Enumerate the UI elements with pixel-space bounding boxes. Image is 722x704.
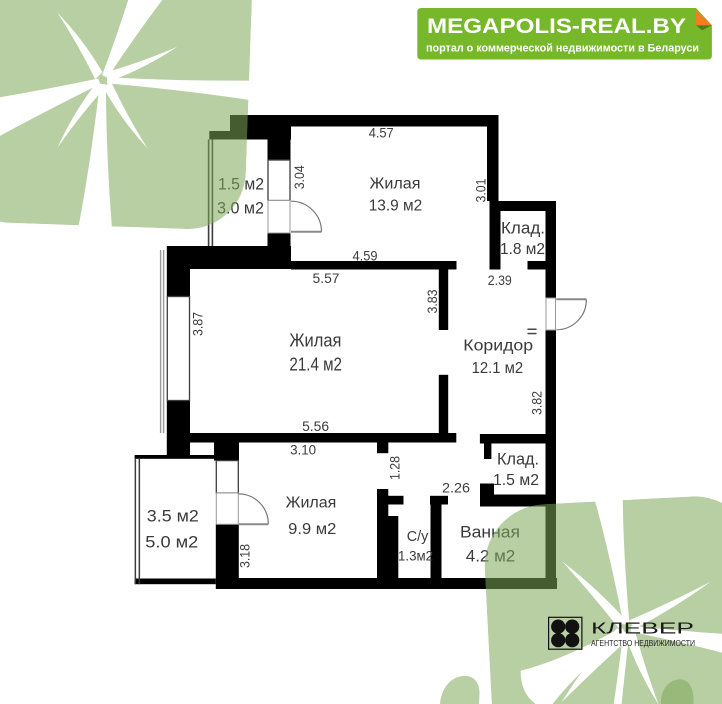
- svg-text:4.59: 4.59: [353, 248, 378, 263]
- svg-text:5.0 м2: 5.0 м2: [145, 532, 198, 551]
- svg-text:3.01: 3.01: [474, 179, 489, 203]
- svg-text:1.3м2: 1.3м2: [398, 548, 433, 564]
- svg-text:АГЕНТСТВО НЕДВИЖИМОСТИ: АГЕНТСТВО НЕДВИЖИМОСТИ: [591, 639, 695, 648]
- svg-text:21.4 м2: 21.4 м2: [289, 354, 342, 374]
- svg-text:3.87: 3.87: [191, 312, 206, 336]
- svg-text:4.57: 4.57: [369, 125, 394, 140]
- svg-text:3.10: 3.10: [290, 443, 316, 458]
- svg-text:5.57: 5.57: [313, 271, 340, 286]
- svg-text:Клад.: Клад.: [501, 220, 545, 238]
- svg-text:5.56: 5.56: [302, 419, 329, 434]
- svg-text:Клад.: Клад.: [497, 451, 539, 469]
- svg-text:3.04: 3.04: [292, 165, 307, 189]
- svg-text:Жилая: Жилая: [370, 176, 421, 193]
- svg-text:3.5 м2: 3.5 м2: [147, 507, 199, 526]
- svg-text:2.39: 2.39: [488, 273, 512, 288]
- svg-text:9.9 м2: 9.9 м2: [288, 521, 336, 538]
- svg-text:Коридор: Коридор: [463, 337, 533, 354]
- svg-text:1.28: 1.28: [388, 456, 403, 480]
- svg-text:Жилая: Жилая: [289, 331, 341, 351]
- svg-text:1.5 м2: 1.5 м2: [493, 472, 539, 489]
- svg-text:С/у: С/у: [407, 528, 429, 545]
- svg-text:3.83: 3.83: [425, 290, 440, 314]
- svg-text:КЛЕВЕР: КЛЕВЕР: [591, 621, 694, 638]
- svg-text:2.26: 2.26: [442, 480, 470, 495]
- svg-text:1.8 м2: 1.8 м2: [500, 241, 545, 258]
- svg-text:3.82: 3.82: [530, 391, 545, 415]
- svg-text:12.1 м2: 12.1 м2: [472, 360, 524, 377]
- svg-text:3.18: 3.18: [238, 544, 253, 568]
- svg-text:портал о коммерческой недвижим: портал о коммерческой недвижимости в Бел…: [426, 42, 699, 54]
- svg-text:13.9 м2: 13.9 м2: [369, 198, 423, 215]
- svg-text:MEGAPOLIS-REAL.BY: MEGAPOLIS-REAL.BY: [427, 15, 686, 38]
- svg-text:Жилая: Жилая: [286, 495, 337, 512]
